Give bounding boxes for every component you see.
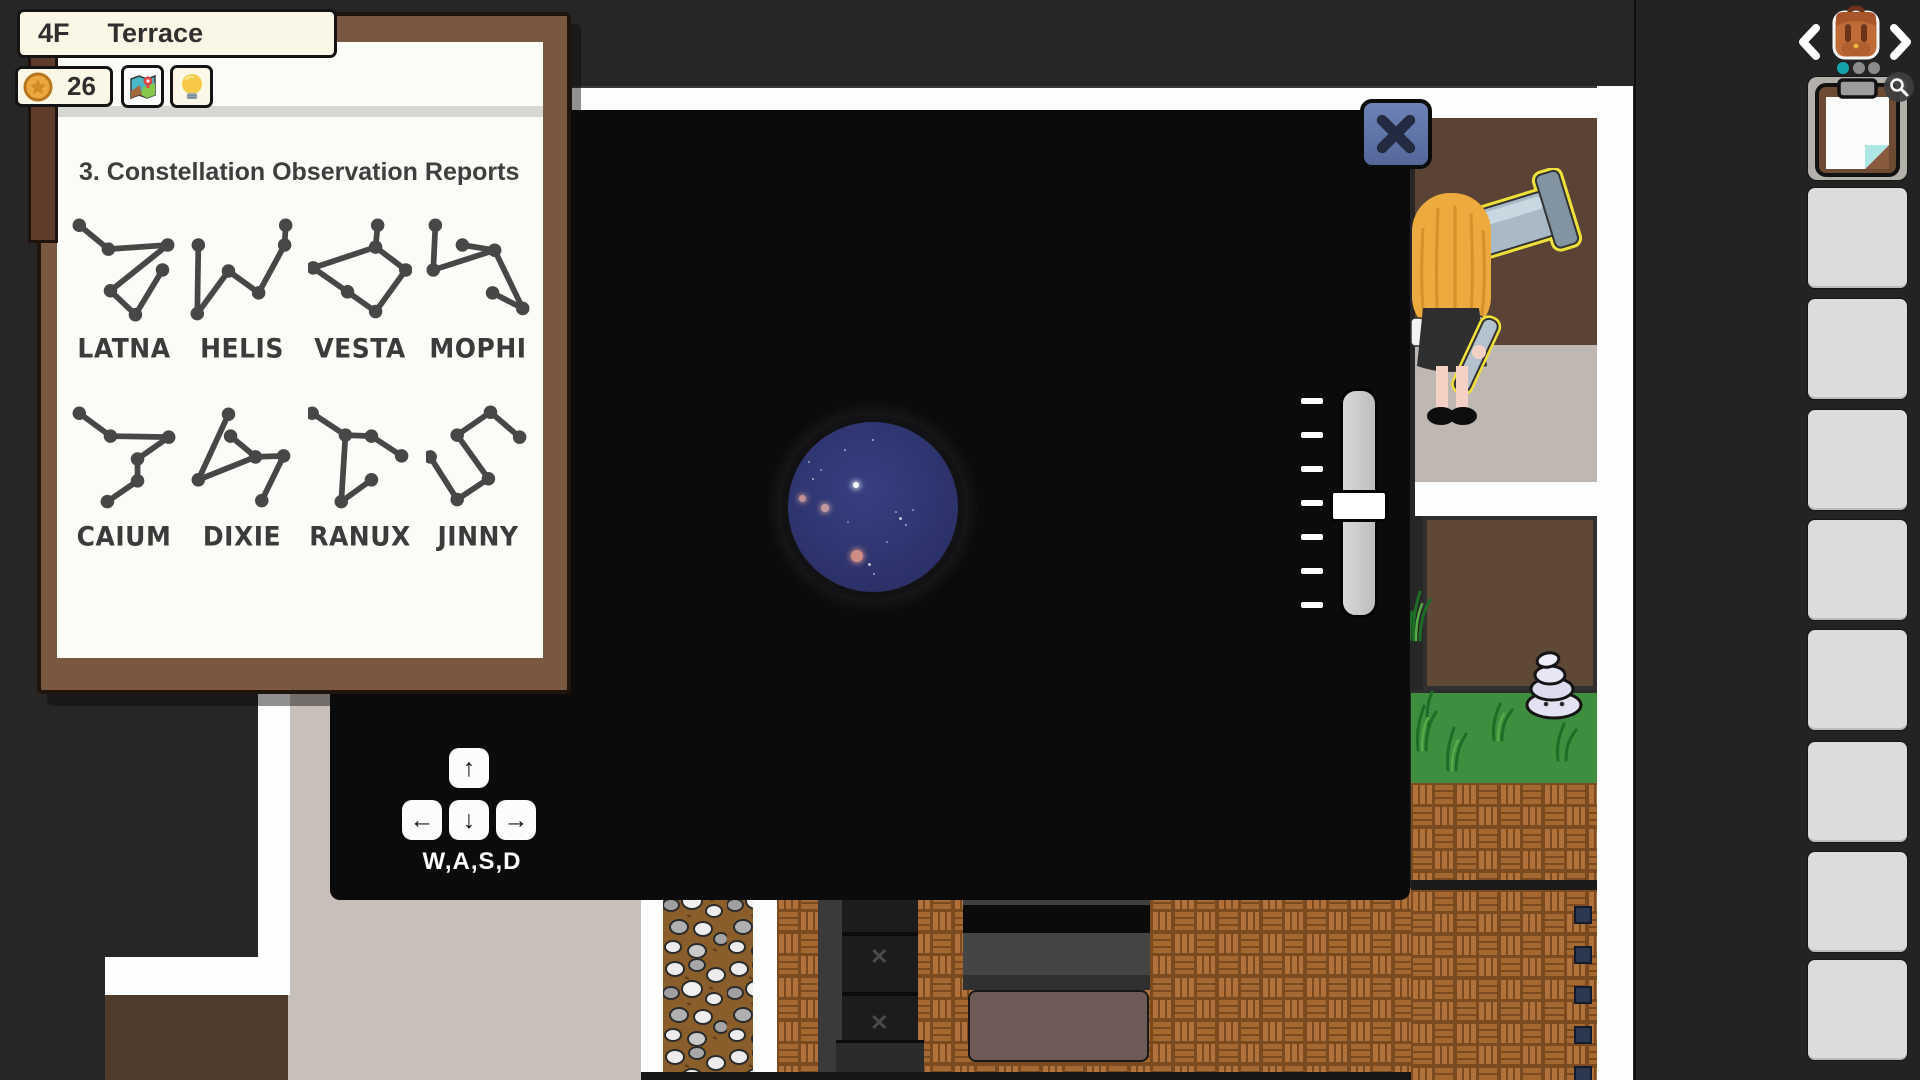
constellation-name: MOPHI: [429, 333, 526, 364]
report-board: 3. Constellation Observation Reports LAT…: [37, 12, 571, 694]
focus-tick: [1301, 466, 1323, 472]
inventory-slot-empty[interactable]: [1808, 520, 1907, 620]
inventory-slot-empty[interactable]: [1808, 630, 1907, 730]
close-button[interactable]: [1360, 99, 1432, 169]
focus-slider-handle[interactable]: [1330, 490, 1388, 522]
focus-tick: [1301, 398, 1323, 404]
floor-tile-dark: [1574, 1066, 1592, 1080]
constellation-figure: [426, 208, 530, 334]
star: [844, 449, 847, 452]
wall-right-vertical: [1597, 86, 1633, 1080]
player-character: [1403, 168, 1598, 430]
focus-tick: [1301, 432, 1323, 438]
star: [905, 524, 908, 527]
key-w-button[interactable]: ↑: [449, 748, 489, 788]
backpack-icon[interactable]: [1828, 2, 1884, 62]
page-dot-active[interactable]: [1837, 62, 1849, 74]
floor-room-brown: [105, 995, 288, 1080]
key-s-button[interactable]: ↓: [449, 800, 489, 840]
movement-hint: W,A,S,D ↑←↓→: [392, 746, 552, 872]
constellation-name: JINNY: [437, 521, 518, 552]
constellation-name: LATNA: [77, 333, 170, 364]
map-icon: [128, 73, 158, 101]
star: [808, 461, 810, 463]
location-label: 4F Terrace: [17, 9, 337, 58]
star: [853, 482, 859, 488]
constellation-figure: [190, 396, 294, 522]
room-label: Terrace: [108, 18, 204, 49]
constellation-name: DIXIE: [203, 521, 281, 552]
star: [851, 550, 863, 562]
inventory-slot-empty[interactable]: [1808, 960, 1907, 1060]
page-dot[interactable]: [1853, 62, 1865, 74]
map-button[interactable]: [121, 65, 164, 108]
star: [912, 509, 914, 511]
constellation-figure: [190, 208, 294, 334]
focus-tick: [1301, 534, 1323, 540]
star: [799, 495, 806, 502]
constellation-name: CAIUM: [77, 521, 172, 552]
coin-icon: [23, 72, 53, 102]
star: [820, 469, 822, 471]
star: [821, 504, 829, 512]
constellation-grid: LATNAHELISVESTAMOPHICAIUMDIXIERANUXJINNY: [65, 208, 539, 628]
drawer-handle-icon: ✕: [870, 1010, 888, 1036]
coin-counter: 26: [15, 66, 113, 107]
floor-parquet-right-b: [1411, 890, 1597, 1080]
floor-tile-dark: [1574, 906, 1592, 924]
star: [895, 511, 897, 513]
constellation-card: DIXIE: [183, 396, 301, 572]
movement-hint-label: W,A,S,D: [392, 848, 552, 876]
constellation-figure: [308, 208, 412, 334]
game-screen: ✕ ✕: [0, 0, 1920, 1080]
inventory-slot-empty[interactable]: [1808, 188, 1907, 288]
wall-left-horizontal: [105, 957, 290, 995]
floor-label: 4F: [38, 18, 70, 49]
page-dot[interactable]: [1868, 62, 1880, 74]
hint-button[interactable]: [170, 65, 213, 108]
drawer-unit: ✕ ✕: [842, 888, 918, 1080]
inventory-slot-empty[interactable]: [1808, 299, 1907, 399]
star: [872, 439, 875, 442]
wall-right-horizontal: [1415, 482, 1597, 516]
lightbulb-icon: [178, 72, 206, 102]
constellation-name: HELIS: [200, 333, 284, 364]
floor-tile-dark: [1574, 946, 1592, 964]
coin-count: 26: [53, 71, 110, 102]
constellation-card: HELIS: [183, 208, 301, 384]
report-title: 3. Constellation Observation Reports: [79, 158, 539, 187]
magnifier-icon: [1888, 76, 1910, 98]
floor-tile-dark: [1574, 1026, 1592, 1044]
chevron-right-icon[interactable]: [1888, 24, 1914, 60]
star: [847, 521, 849, 523]
star: [886, 541, 888, 543]
floor-parquet-right-a: [1411, 783, 1597, 880]
constellation-card: CAIUM: [65, 396, 183, 572]
report-paper: 3. Constellation Observation Reports LAT…: [57, 42, 543, 658]
star: [873, 573, 876, 576]
constellation-card: LATNA: [65, 208, 183, 384]
star: [812, 478, 815, 481]
focus-tick: [1301, 602, 1323, 608]
inventory-sidebar: [1634, 0, 1920, 1080]
chevron-left-icon[interactable]: [1796, 24, 1822, 60]
constellation-figure: [72, 208, 176, 334]
inventory-slot-empty[interactable]: [1808, 410, 1907, 510]
constellation-figure: [426, 396, 530, 522]
wall-bottom-line: [641, 1072, 1446, 1080]
focus-tick: [1301, 500, 1323, 506]
inventory-slot-empty[interactable]: [1808, 742, 1907, 842]
key-d-button[interactable]: →: [496, 800, 536, 840]
focus-tick: [1301, 568, 1323, 574]
inspect-badge[interactable]: [1884, 72, 1914, 102]
constellation-card: VESTA: [301, 208, 419, 384]
constellation-figure: [308, 396, 412, 522]
floor-tile-dark: [1574, 986, 1592, 1004]
wall-dark-right: [1411, 880, 1597, 890]
stone-cairn[interactable]: [1524, 648, 1584, 720]
close-x-icon: [1373, 111, 1419, 157]
constellation-name: VESTA: [314, 333, 405, 364]
constellation-card: JINNY: [419, 396, 537, 572]
star: [899, 517, 902, 520]
telescope-eyepiece-view: [788, 422, 958, 592]
constellation-card: RANUX: [301, 396, 419, 572]
star: [868, 563, 871, 566]
constellation-card: MOPHI: [419, 208, 537, 384]
inventory-slot-empty[interactable]: [1808, 852, 1907, 952]
drawer-handle-icon: ✕: [870, 944, 888, 970]
kitchen-counter: [963, 893, 1150, 1060]
key-a-button[interactable]: ←: [402, 800, 442, 840]
constellation-figure: [72, 396, 176, 522]
constellation-name: RANUX: [309, 521, 411, 552]
